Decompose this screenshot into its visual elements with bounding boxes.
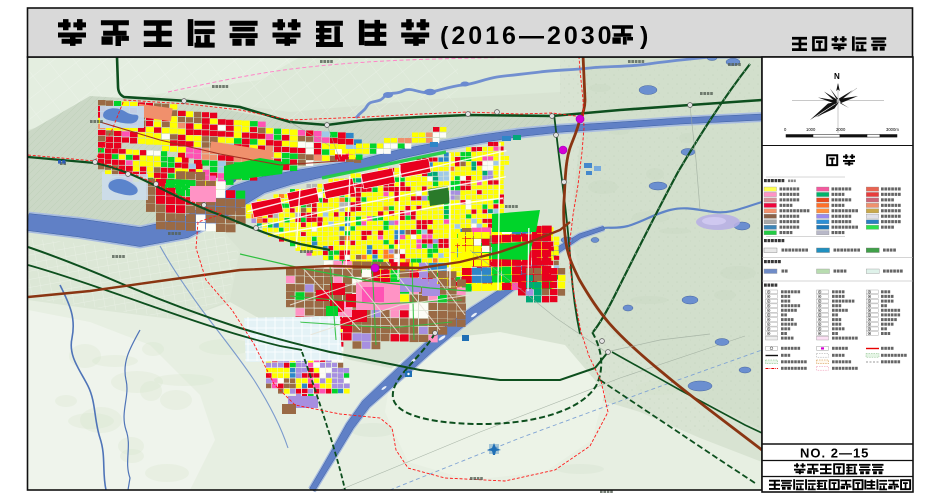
svg-text:): ) [640, 22, 648, 50]
svg-text:2000: 2000 [836, 127, 846, 132]
svg-text:N: N [834, 72, 840, 81]
svg-text:NO. 2—15: NO. 2—15 [800, 446, 869, 461]
svg-text:1000: 1000 [806, 127, 816, 132]
svg-text:3000m: 3000m [886, 127, 899, 132]
svg-text:(2016—2030: (2016—2030 [440, 22, 615, 50]
